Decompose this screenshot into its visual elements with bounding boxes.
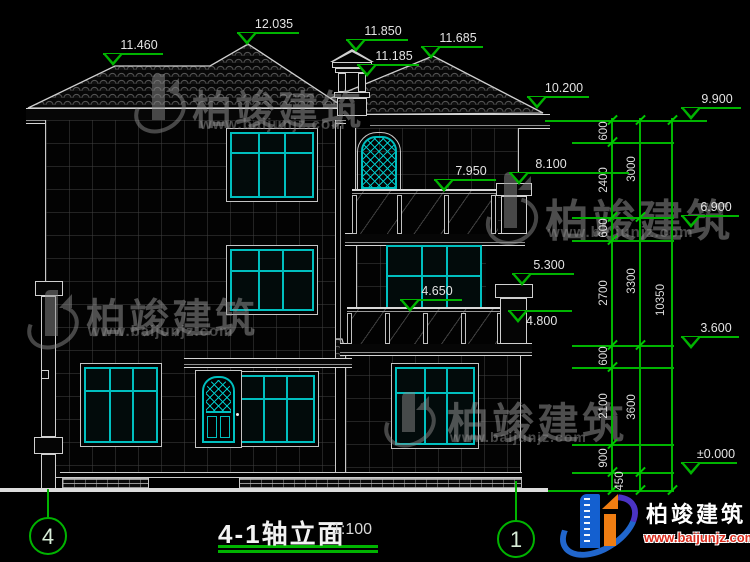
level-marker-11685: 11.685 xyxy=(421,31,483,46)
wing-junction-line xyxy=(340,126,341,352)
level-marker-5300: 5.300 xyxy=(512,258,574,273)
door-knob xyxy=(236,413,239,416)
drawing-title: 4-1轴立面 xyxy=(218,514,346,551)
level-marker-6900: 6.900 xyxy=(681,200,739,215)
porch-fascia xyxy=(184,358,352,368)
level-marker-9900: 9.900 xyxy=(681,92,741,107)
third-floor-window xyxy=(226,128,318,202)
dim-story-3000: 3000 xyxy=(625,147,639,191)
level-marker-11460: 11.460 xyxy=(103,38,163,53)
first-floor-slab xyxy=(340,343,532,356)
wall-bracket xyxy=(41,370,49,379)
upper-balcony-railing xyxy=(352,189,498,234)
level-marker-4650: 4.650 xyxy=(400,284,462,299)
ground-floor-left-window xyxy=(80,363,162,447)
level-marker-11850: 11.850 xyxy=(346,24,408,39)
dim-floor-2100: 2100 xyxy=(597,384,611,428)
ground-floor-middle-window xyxy=(235,371,319,447)
watermark-logo-icon xyxy=(383,392,443,446)
level-marker-3600: 3.600 xyxy=(681,321,739,336)
extension-line xyxy=(572,444,674,446)
level-marker-10200: 10.200 xyxy=(527,81,589,96)
dim-floor-2400: 2400 xyxy=(597,158,611,202)
logo-roof-icon xyxy=(602,494,618,509)
axis-leader-4 xyxy=(47,489,49,517)
arched-lattice-window xyxy=(357,132,401,193)
extension-line xyxy=(572,217,674,219)
dim-floor-600c: 600 xyxy=(597,334,611,378)
elevation-drawing-canvas: 柏竣建筑 www.baijunjz.com 柏竣建筑 www.baijunjz.… xyxy=(0,0,750,562)
brand-logo: 柏竣建筑 www.baijunjz.com xyxy=(550,488,750,560)
level-marker-11185: 11.185 xyxy=(357,49,419,64)
right-roof-eave xyxy=(370,114,550,129)
axis-leader-1 xyxy=(515,481,517,520)
level-marker-8100: 8.100 xyxy=(509,157,581,172)
watermark-url: www.baijunjz.com xyxy=(200,116,345,133)
axis-bubble-4: 4 xyxy=(29,517,67,555)
dimension-chain-line xyxy=(671,118,673,490)
dimension-chain-line xyxy=(611,118,613,490)
watermark-logo-icon xyxy=(133,74,191,136)
drawing-scale: 1:100 xyxy=(332,521,372,539)
extension-line xyxy=(572,240,674,242)
logo-brand-text: 柏竣建筑 xyxy=(646,497,746,529)
lower-balcony-pillar-cap xyxy=(495,284,533,298)
extension-line xyxy=(572,367,674,369)
ground-line xyxy=(0,488,548,492)
extension-line xyxy=(545,120,707,122)
watermark-logo-icon xyxy=(26,290,84,354)
extension-line xyxy=(572,142,674,144)
dim-story-3600: 3600 xyxy=(625,385,639,429)
dimension-chain-line xyxy=(639,118,641,490)
lower-balcony-railing xyxy=(347,307,503,344)
watermark-url: www.baijunjz.com xyxy=(88,323,233,340)
dim-floor-900: 900 xyxy=(597,436,611,480)
extension-line xyxy=(572,345,674,347)
dim-total-10350: 10350 xyxy=(654,278,668,322)
level-marker-0000: ±0.000 xyxy=(681,447,739,462)
logo-building-icon xyxy=(580,494,600,548)
level-marker-7950: 7.950 xyxy=(434,164,496,179)
logo-bar-icon xyxy=(604,514,616,546)
dim-floor-2700: 2700 xyxy=(597,271,611,315)
level-marker-12035: 12.035 xyxy=(237,17,299,32)
watermark-url: www.baijunjz.com xyxy=(450,429,587,445)
logo-site-text: www.baijunjz.com xyxy=(644,530,750,545)
axis-bubble-1: 1 xyxy=(497,520,535,558)
entrance-door xyxy=(195,370,242,448)
pilaster-lower xyxy=(41,454,56,489)
pilaster-base xyxy=(34,437,63,454)
dim-story-3300: 3300 xyxy=(625,259,639,303)
dim-floor-600b: 600 xyxy=(597,206,611,250)
dim-floor-600: 600 xyxy=(597,109,611,153)
